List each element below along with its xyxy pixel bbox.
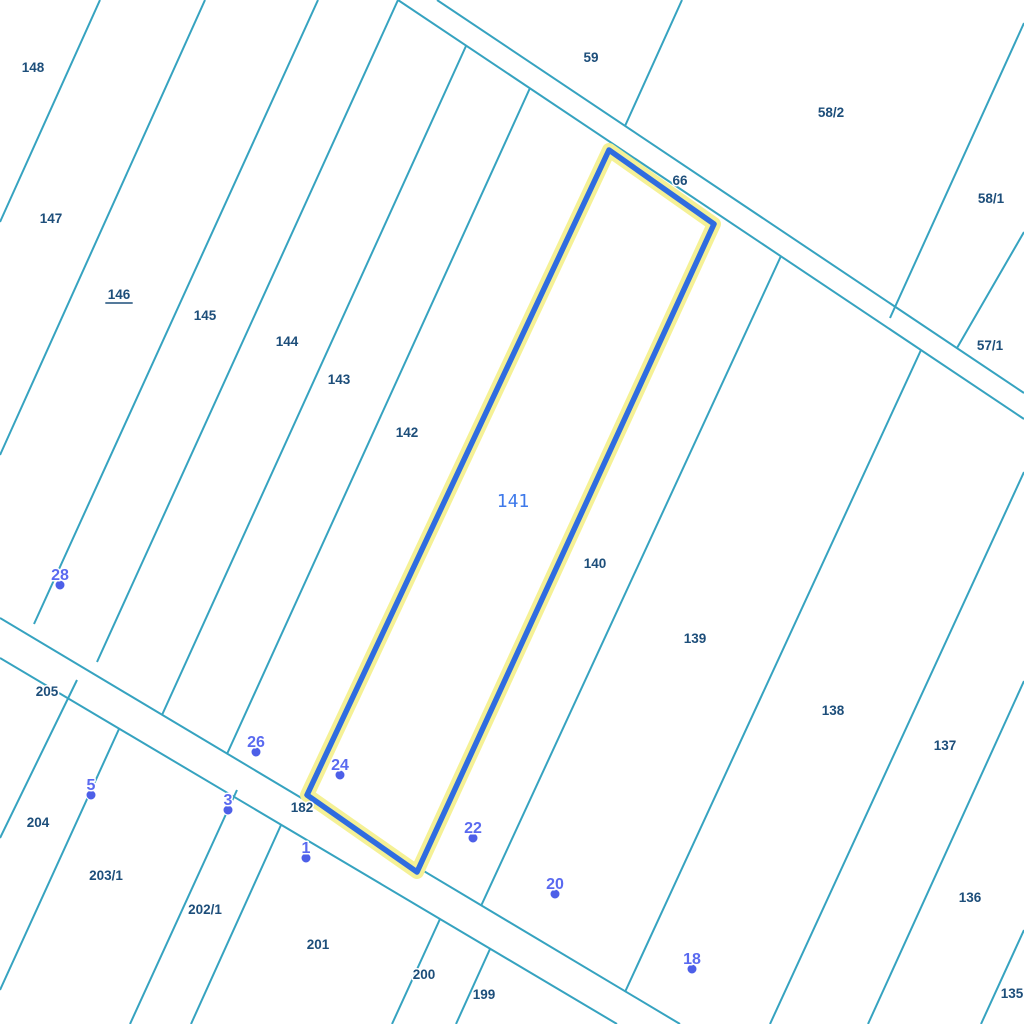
parcel-label-144[interactable]: 144: [276, 334, 299, 349]
cadastral-map-svg[interactable]: 1481471461451441431421401391381371361355…: [0, 0, 1024, 1024]
address-marker-5[interactable]: 5: [86, 777, 96, 800]
address-marker-number: 1: [302, 840, 311, 857]
address-marker-number: 26: [247, 734, 265, 751]
parcel-label-143[interactable]: 143: [328, 372, 351, 387]
map-background[interactable]: [0, 0, 1024, 1024]
address-marker-3[interactable]: 3: [223, 792, 233, 815]
parcel-label-199[interactable]: 199: [473, 987, 496, 1002]
parcel-label-201[interactable]: 201: [307, 937, 330, 952]
address-marker-number: 28: [51, 567, 69, 584]
address-marker-number: 18: [683, 951, 701, 968]
parcel-label-138[interactable]: 138: [822, 703, 845, 718]
selected-parcel-label[interactable]: 141: [497, 491, 530, 512]
parcel-label-148[interactable]: 148: [22, 60, 45, 75]
parcel-label-202-1[interactable]: 202/1: [188, 902, 222, 917]
cadastral-map[interactable]: 1481471461451441431421401391381371361355…: [0, 0, 1024, 1024]
parcel-label-140[interactable]: 140: [584, 556, 607, 571]
parcel-label-58-1[interactable]: 58/1: [978, 191, 1005, 206]
address-marker-number: 24: [331, 757, 349, 774]
parcel-label-205[interactable]: 205: [36, 684, 59, 699]
parcel-label-142[interactable]: 142: [396, 425, 419, 440]
parcel-label-58-2[interactable]: 58/2: [818, 105, 844, 120]
address-marker-number: 20: [546, 876, 564, 893]
address-marker-number: 5: [87, 777, 96, 794]
parcel-label-145[interactable]: 145: [194, 308, 217, 323]
parcel-label-137[interactable]: 137: [934, 738, 957, 753]
parcel-label-203-1[interactable]: 203/1: [89, 868, 123, 883]
parcel-label-182[interactable]: 182: [291, 800, 314, 815]
parcel-label-66[interactable]: 66: [672, 173, 688, 188]
parcel-label-200[interactable]: 200: [413, 967, 436, 982]
parcel-label-139[interactable]: 139: [684, 631, 707, 646]
parcel-label-147[interactable]: 147: [40, 211, 63, 226]
parcel-label-136[interactable]: 136: [959, 890, 982, 905]
parcel-label-204[interactable]: 204: [27, 815, 50, 830]
parcel-label-135[interactable]: 135: [1001, 986, 1024, 1001]
address-marker-number: 22: [464, 820, 482, 837]
parcel-label-59[interactable]: 59: [583, 50, 598, 65]
parcel-label-146[interactable]: 146: [108, 287, 131, 302]
parcel-label-57-1[interactable]: 57/1: [977, 338, 1004, 353]
address-marker-1[interactable]: 1: [301, 840, 311, 863]
address-marker-number: 3: [224, 792, 233, 809]
